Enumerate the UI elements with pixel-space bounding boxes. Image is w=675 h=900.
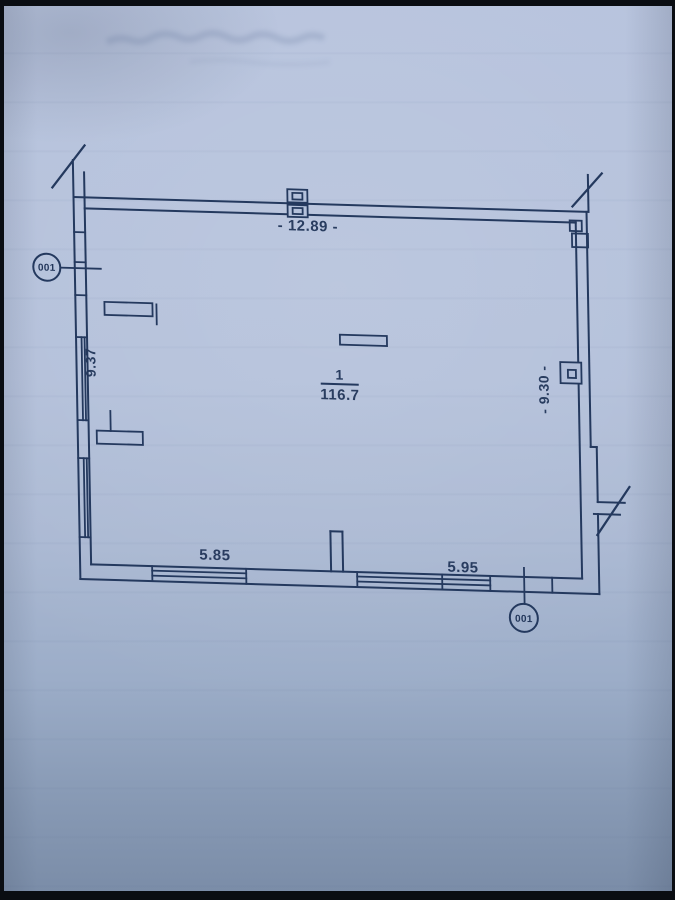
scanned-photo: 001 001 - 12.89 - 9.37 - 9.30 - 5.85 5.9…	[0, 0, 675, 900]
dimension-left: 9.37	[82, 348, 99, 378]
room-number: 1	[335, 367, 344, 383]
bleed-through-text	[107, 33, 330, 64]
dimension-right: - 9.30 -	[535, 365, 552, 414]
radiator	[94, 302, 389, 452]
room-area: 116.7	[320, 386, 360, 404]
section-label-left: 001	[38, 262, 56, 274]
partition-stub	[330, 531, 343, 571]
corner-column-symbol	[570, 220, 588, 247]
section-mark-001-left: 001	[33, 253, 101, 282]
section-label-bottom: 001	[515, 614, 533, 626]
floor-plan-drawing: 001 001 - 12.89 - 9.37 - 9.30 - 5.85 5.9…	[0, 0, 675, 900]
right-wall-column-symbol	[560, 362, 581, 384]
room-label: 1 116.7	[320, 366, 360, 404]
dimension-bottom-right: 5.95	[447, 559, 478, 577]
dimension-bottom-left: 5.85	[199, 546, 230, 564]
bottom-wall-windows	[152, 566, 552, 593]
dimension-top: - 12.89 -	[278, 217, 339, 236]
